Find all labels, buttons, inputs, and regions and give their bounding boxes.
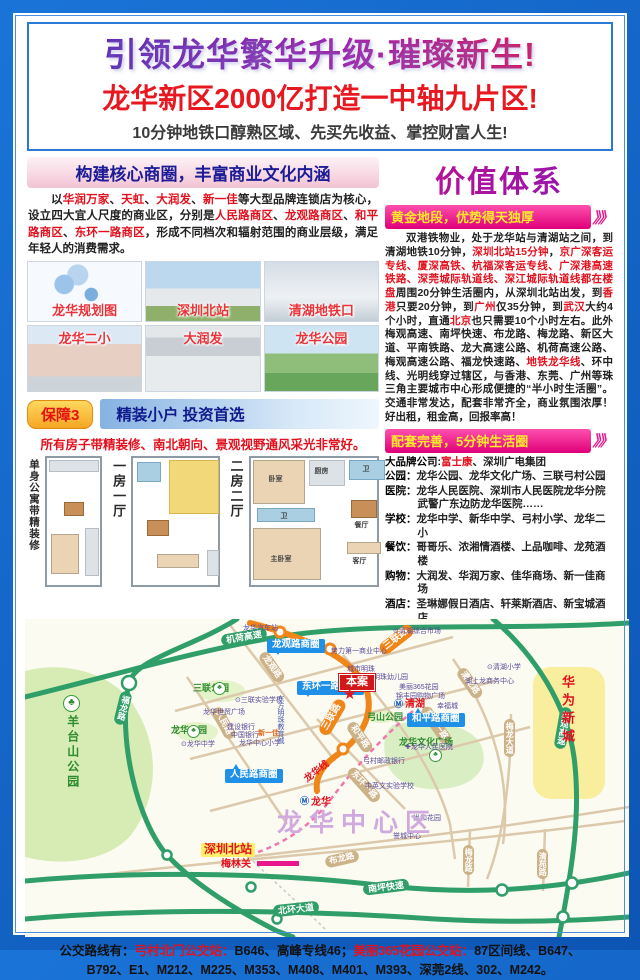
main-headline: 引领龙华繁华升级·璀璨新生! [33,28,607,76]
map-mico-label: Ⓜ [394,699,403,709]
map-bigarea-label: 龙华中心区 [277,809,437,838]
map-poi-label: 弓村邮政银行 [363,758,405,766]
amenity-row: 公园：龙华公园、龙华文化广场、三联弓村公园 [385,470,613,484]
text-segment: 周围20分钟生活圈内，从深圳北站出发，到 [396,287,603,299]
floorplan-strip: 单身公寓带精装修 一房一厅 二房二厅 [27,456,379,589]
amenity-row: 购物：大润发、华润万家、佳华商场、新一佳商场 [385,570,613,597]
sub-headline: 龙华新区2000亿打造一中轴九片区! [33,77,607,117]
text-segment: ， [549,246,560,258]
text-segment: 、 [63,227,75,239]
photo-school: 龙华二小 [27,325,142,392]
photo-north-station: 深圳北站 [145,261,260,322]
guarantee-badge: 保障3 [27,400,93,429]
map-park-label: 弓山公园 [367,712,403,722]
location-paragraph: 双港铁物业，处于龙华站与清湖站之间，到清湖地铁10分钟，深圳北站15分钟，京广深… [385,232,613,425]
map-poi-label: 中英文实验学校 [365,783,414,791]
photo-park: 龙华公园 [264,325,379,392]
room-label: 餐厅 [355,520,369,530]
room-label: 卫 [363,464,370,474]
map-poi-label: 龙华世贸广场 [203,709,245,717]
map-bar-label [257,861,299,866]
map-biz-label: 人民路商圈 [225,769,283,783]
value-system-title: 价值体系 [385,157,613,201]
amenity-list: 大品牌公司:富士康、深圳广电集团公园：龙华公园、龙华文化广场、三联弓村公园医院：… [385,456,613,640]
room-label: 厨房 [315,466,329,476]
photo-planning-map: 龙华规划图 [27,261,142,322]
text-segment: 美丽365花园公交站： [353,944,474,958]
text-segment: 只要20分钟，到 [396,301,474,313]
map-vred-label: 华为新城 [559,675,574,747]
text-segment: 大润发 [156,194,191,206]
map-poi-label: ⊙龙华中学 [181,741,215,749]
text-segment: 、 [191,194,203,206]
map-tree-label: ♣ [187,725,200,738]
amenity-row: 学校：龙华中学、新华中学、弓村小学、龙华二小 [385,513,613,540]
text-segment: 地铁龙华线 [526,356,580,368]
floorplan-label-studio: 单身公寓带精装修 [27,459,42,589]
text-segment: 、 [145,194,157,206]
room-label: 客厅 [353,556,367,566]
room-label: 卧室 [269,474,283,484]
map-sbz-label: 深圳北站 [201,843,255,857]
text-segment: 武汉 [563,301,585,313]
map-poi-label: 建设银行 [227,724,255,732]
text-segment: 人民路商区 [215,210,273,222]
photo-caption: 龙华公园 [265,328,378,347]
banner-amenities: 配套完善，5分钟生活圈 [385,429,591,453]
map-st-label: 龙华 [311,797,331,809]
map-biz-label: 和平路商圈 [407,713,465,727]
amenity-row: 大品牌公司:富士康、深圳广电集团 [385,456,613,470]
map-poi-label: ✚龙华人民医院 [405,744,453,752]
photo-mall: 大润发 [145,325,260,392]
map-biz-label: 龙观路商圈 [267,639,325,653]
map-poi-label: 城市明珠 [347,666,375,674]
guarantee-note: 所有房子带精装修、南北朝向、景观视野通风采光非常好。 [27,434,379,453]
text-segment: 、 [109,194,121,206]
chevron-icon: 》》 [591,430,616,451]
map-mico-label: Ⓜ [300,796,309,806]
map-poi-label: ⊙清湖综合市场 [393,628,441,636]
banner-location: 黄金地段，优势得天独厚 [385,205,591,229]
map-rdv-label: 梅龙大道 [504,719,515,757]
photo-grid: 龙华规划图 深圳北站 清湖地铁口 龙华二小 大润发 龙华公园 [27,261,379,392]
map-parkv-label: 羊台山公园 [65,715,79,790]
text-segment: 华润万家 [63,194,110,206]
photo-caption: 龙华二小 [28,328,141,347]
room-label: 主卧室 [271,554,292,564]
map-mlg-label: 梅林关 [221,859,251,871]
text-segment: 公交路线有： [60,944,135,958]
floorplan-studio [45,456,102,587]
text-segment: 深圳北站15分钟 [472,246,548,258]
map-drawing [25,619,629,937]
text-segment: 、 [273,210,285,222]
map-poi-label: 龙华汽车站 [243,625,278,633]
text-segment: 以 [51,194,63,206]
flyer-page: 引领龙华繁华升级·璀璨新生! 龙华新区2000亿打造一中轴九片区! 10分钟地铁… [13,13,627,935]
text-segment: 龙观路商区 [285,210,343,222]
photo-caption: 清湖地铁口 [265,300,378,319]
room-label: 卫 [281,511,288,521]
right-column: 价值体系 黄金地段，优势得天独厚 》》 双港铁物业，处于龙华站与清湖站之间，到清… [385,157,613,613]
photo-caption: 大润发 [146,328,259,347]
text-segment: 北京 [450,315,472,327]
text-segment: 仅35分钟，到 [496,301,563,313]
map-tree-label: ♣ [63,695,80,712]
map-star-label: ★ [343,686,356,703]
map-rdv-label: 梅龙路 [463,845,474,875]
map-poi-label: 美丽365花园 [399,684,439,692]
floorplan-1b1l [131,456,219,587]
photo-caption: 龙华规划图 [28,300,141,319]
text-segment: B646、高峰专线46； [235,944,354,958]
floorplan-label-2b2l: 二房二厅 [227,459,246,589]
map-poi-label: 龙华中心小学 [239,740,281,748]
text-segment: 新一佳 [203,194,238,206]
text-segment: 东环一路商区 [75,227,145,239]
map-poi-label: ⊙清湖小学 [487,664,521,672]
map-poi-label: 势力第一商业中心 [331,648,387,656]
map-poi-label: 湖上龙商务中心 [465,678,514,686]
text-segment: 弓村北门公交站： [135,944,235,958]
photo-metro-entrance: 清湖地铁口 [264,261,379,322]
map-poic-label: 新一佳 [258,730,279,738]
map-rdv-label: 清苑路 [537,849,548,879]
bus-routes: 公交路线有：弓村北门公交站：B646、高峰专线46；美丽365花园公交站：87区… [41,942,599,980]
floorplan-label-1b1l: 一房一厅 [109,459,128,589]
guarantee-header: 精装小户 投资首选 [100,399,379,429]
chevron-icon: 》》 [591,207,616,228]
left-column: 构建核心商圈，丰富商业文化内涵 以华润万家、天虹、大润发、新一佳等大型品牌连锁店… [27,157,379,613]
amenity-row: 医院：龙华人民医院、深圳市人民医院龙华分院 武警广东边防龙华医院…… [385,485,613,512]
tagline: 10分钟地铁口醇熟区域、先买先收益、掌控财富人生! [33,119,607,143]
location-map: 机荷高速南坪快速北环大道福龙路梅观高速龙观路人民路东环一路东环一路和平路清龙路梅… [25,619,629,937]
map-st-label: 清湖 [405,699,425,711]
text-segment: 天虹 [121,194,144,206]
title-box: 引领龙华繁华升级·璀璨新生! 龙华新区2000亿打造一中轴九片区! 10分钟地铁… [27,22,613,151]
floorplan-2b2l: 卧室 厨房 卫 餐厅 卫 客厅 主卧室 [249,456,380,587]
text-segment: 广州 [474,301,496,313]
map-poi-label: 幸福城 [437,703,458,711]
map-tree-label: ♣ [213,682,226,695]
amenity-row: 餐饮：哥哥乐、浓湘情酒楼、上品咖啡、龙苑酒楼 [385,541,613,568]
photo-caption: 深圳北站 [146,300,259,319]
text-segment: 、 [343,210,355,222]
map-poi-label: 中国银行 [231,732,259,740]
business-intro: 以华润万家、天虹、大润发、新一佳等大型品牌连锁店为核心，设立四大宜人尺度的商业区… [28,192,378,257]
business-section-header: 构建核心商圈，丰富商业文化内涵 [27,157,379,188]
